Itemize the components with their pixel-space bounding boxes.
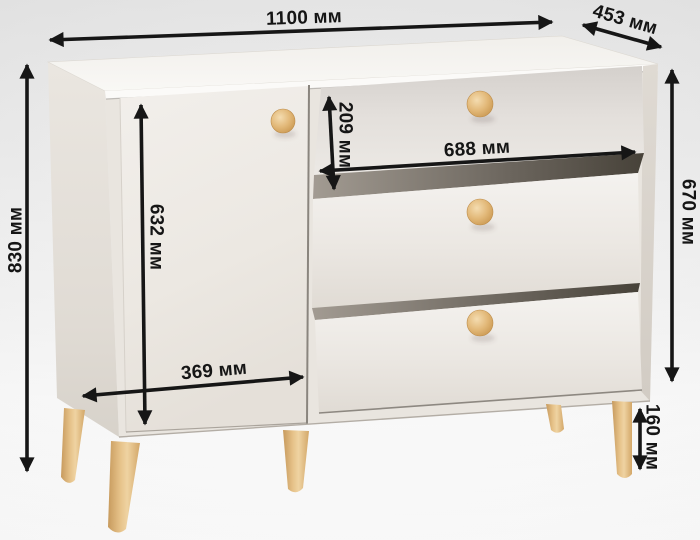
drawer-width-label: 688 мм xyxy=(443,136,510,161)
leg-front-right xyxy=(612,401,632,478)
leg-back-right xyxy=(546,404,564,433)
door-knob xyxy=(271,109,295,133)
drawer-1-knob xyxy=(467,91,493,117)
door-height-label: 632 мм xyxy=(146,204,167,270)
drawer-2-knob xyxy=(467,199,493,225)
leg-back-left xyxy=(61,408,85,483)
leg-front-center xyxy=(283,430,309,492)
overall-width-label: 1100 мм xyxy=(266,6,343,30)
front-height-label: 670 мм xyxy=(678,179,699,245)
depth-label: 453 мм xyxy=(590,1,660,39)
leg-front-left xyxy=(108,441,140,533)
drawer-3-knob xyxy=(467,310,493,336)
dimension-diagram: 1100 мм 453 мм 830 мм 670 мм 209 мм 688 … xyxy=(0,0,700,540)
overall-height-label: 830 мм xyxy=(6,207,27,273)
leg-height-label: 160 мм xyxy=(642,404,663,470)
diagram-canvas: 1100 мм 453 мм 830 мм 670 мм 209 мм 688 … xyxy=(0,0,700,540)
top-drawer-height-label: 209 мм xyxy=(335,102,356,168)
